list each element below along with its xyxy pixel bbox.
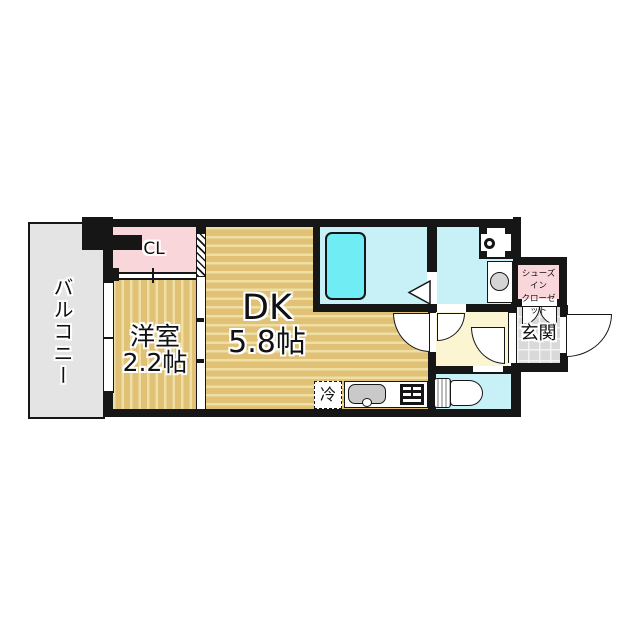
entrance-label: 玄関 xyxy=(517,325,560,344)
stove-burner xyxy=(403,393,411,396)
wall-toilet-right xyxy=(511,372,521,417)
entrance-step xyxy=(508,313,517,363)
western-room-size: 2.2帖 xyxy=(123,348,188,377)
closet-door-front xyxy=(113,272,196,280)
wall-entrance-bottom xyxy=(511,363,568,372)
washbasin-icon xyxy=(487,261,513,303)
toilet-tank xyxy=(434,378,451,408)
washbasin-bowl xyxy=(490,272,509,291)
floor-plan: バルコニー xyxy=(0,0,640,640)
kitchen-counter xyxy=(344,381,428,408)
wall-bottom xyxy=(105,409,521,417)
stove-burner xyxy=(413,387,421,390)
dk-size: 5.8帖 xyxy=(228,325,306,360)
wall-bath-washroom xyxy=(427,219,437,272)
wall-hall-step-corner xyxy=(508,304,517,313)
divider-wall-top xyxy=(196,219,206,233)
closet-door-tick xyxy=(152,268,154,283)
toilet-icon xyxy=(434,378,484,409)
closet-label: CL xyxy=(130,241,178,259)
shoes-closet-line2: クローゼット xyxy=(521,294,555,316)
dk-label: DK 5.8帖 xyxy=(197,290,337,358)
refrigerator-label: 冷 xyxy=(314,387,342,404)
sink-drain xyxy=(362,398,372,407)
entry-door-arc xyxy=(566,314,612,357)
washer-corner xyxy=(481,251,487,257)
shoes-closet-label: シューズイン クローゼット xyxy=(518,268,559,317)
bath-door-icon xyxy=(407,280,431,305)
western-room-label: 洋室 2.2帖 xyxy=(105,324,205,377)
closet-west-stub xyxy=(104,268,119,281)
western-room-name: 洋室 xyxy=(130,322,180,351)
washing-machine-icon xyxy=(479,226,513,259)
washer-corner xyxy=(505,228,511,234)
stove-icon xyxy=(400,384,424,405)
stove-burner xyxy=(413,393,421,396)
wall-wet-bottom xyxy=(313,304,517,312)
toilet-bowl xyxy=(450,380,483,406)
washer-corner xyxy=(481,228,487,234)
stove-burner xyxy=(403,387,411,390)
washer-corner xyxy=(505,251,511,257)
stove-burner xyxy=(403,399,421,402)
shoes-closet-line1: シューズイン xyxy=(522,269,556,291)
dk-name: DK xyxy=(242,288,292,328)
toilet-door-gap xyxy=(473,366,503,372)
washer-drain xyxy=(484,238,495,249)
sliding-door-hatch xyxy=(196,233,206,277)
balcony-label: バルコニー xyxy=(36,262,72,402)
washroom-door-gap xyxy=(437,304,466,312)
wall-washroom-right xyxy=(513,217,521,262)
